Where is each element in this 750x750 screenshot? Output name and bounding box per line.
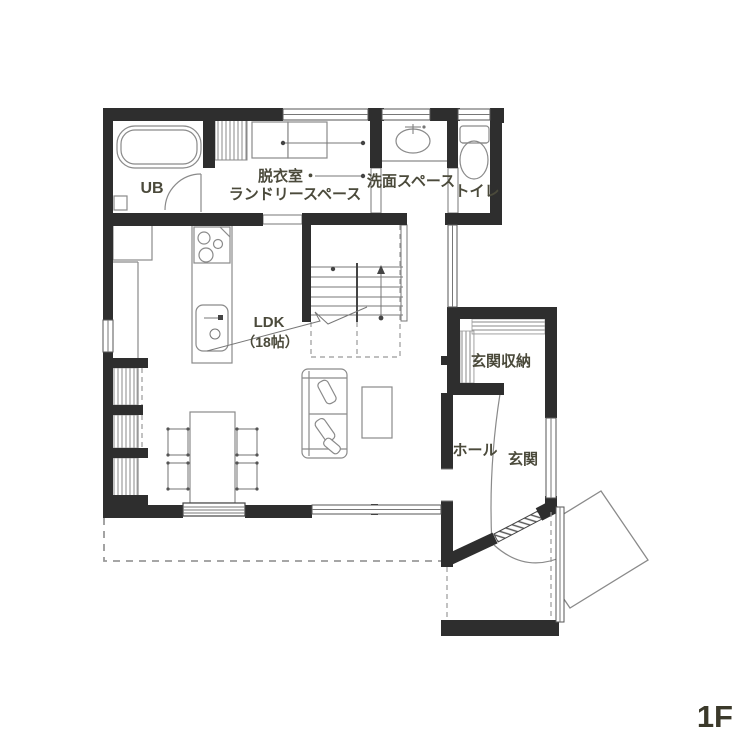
sofa-icon xyxy=(302,369,347,458)
deck-outline xyxy=(104,518,441,561)
stairs-icon xyxy=(311,225,407,357)
refrigerator-icon xyxy=(113,222,152,260)
dining-table-icon xyxy=(190,412,235,503)
bottom-sliding-window xyxy=(183,503,245,516)
bathtub-icon xyxy=(114,126,201,210)
washbasin-icon xyxy=(380,124,447,161)
laundry-doorway xyxy=(263,215,302,224)
label-entrance: 玄関 xyxy=(508,450,538,468)
label-toilet: トイレ xyxy=(454,183,499,200)
toilet-icon xyxy=(460,126,489,179)
floor-plan-canvas: UB 脱衣室・ ランドリースペース 洗面スペース トイレ LDK （18帖） 玄… xyxy=(0,0,750,750)
label-ldk-size: （18帖） xyxy=(241,334,299,350)
ub-door-icon xyxy=(165,174,201,212)
label-ub: UB xyxy=(140,180,163,197)
floor-plan-svg: UB 脱衣室・ ランドリースペース 洗面スペース トイレ LDK （18帖） 玄… xyxy=(0,0,750,750)
entrance-storage-shelf-icon xyxy=(460,319,545,383)
stove-icon xyxy=(194,227,230,263)
label-washroom: 洗面スペース xyxy=(367,172,455,190)
coffee-table-icon xyxy=(362,387,392,438)
label-laundry-1: 脱衣室・ xyxy=(258,167,318,185)
label-hall: ホール xyxy=(452,442,497,459)
bottom-long-window xyxy=(312,505,441,514)
wall-shelf-hatch-icon xyxy=(108,368,142,500)
shelf-hatch-icon xyxy=(215,120,247,160)
label-entrance-storage: 玄関収納 xyxy=(471,352,531,370)
label-ldk: LDK xyxy=(254,314,285,331)
floor-label: 1F xyxy=(697,699,733,734)
label-laundry-2: ランドリースペース xyxy=(229,186,361,203)
kitchen-sink-icon xyxy=(196,305,228,351)
washing-machine-icon xyxy=(252,122,327,158)
